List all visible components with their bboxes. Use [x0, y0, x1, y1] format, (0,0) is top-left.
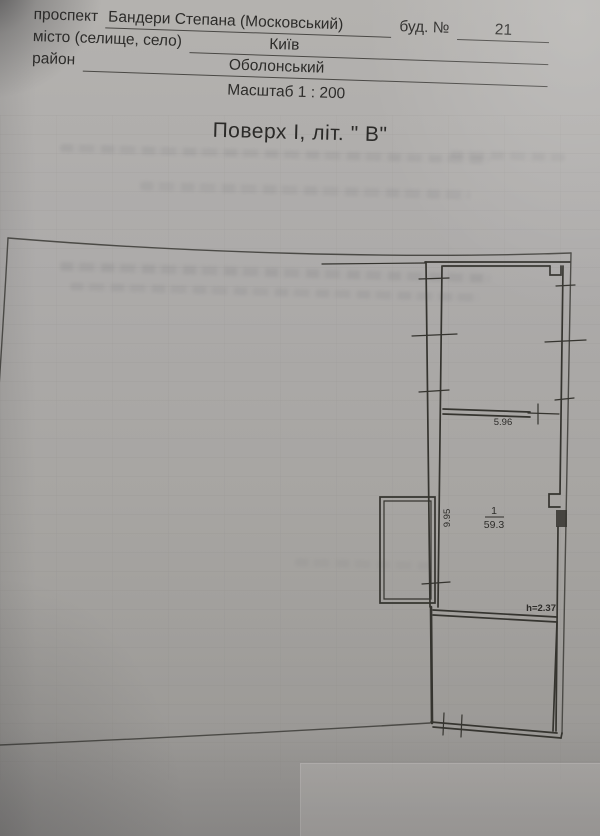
room-number-label: 1: [491, 505, 497, 517]
room-area-label: 59.3: [484, 519, 505, 531]
annex-room: [380, 497, 435, 603]
ceiling-height-label: h=2.37: [526, 603, 556, 614]
dimension-label-width: 5.96: [494, 417, 513, 428]
right-wall-ticks: [545, 285, 586, 400]
right-wall-window-block: [556, 510, 567, 527]
floor-plan-svg: 5.96 9.95 1 59.3 h=2.37: [0, 0, 600, 836]
plan-labels: 5.96 9.95 1 59.3 h=2.37: [442, 417, 556, 614]
unit-walls: [322, 262, 586, 738]
right-wall-notch: [549, 494, 560, 507]
bottom-room: [431, 610, 562, 738]
building-outline: [0, 238, 571, 745]
top-right-notch: [550, 266, 561, 275]
dimension-label-depth: 9.95: [442, 509, 453, 528]
